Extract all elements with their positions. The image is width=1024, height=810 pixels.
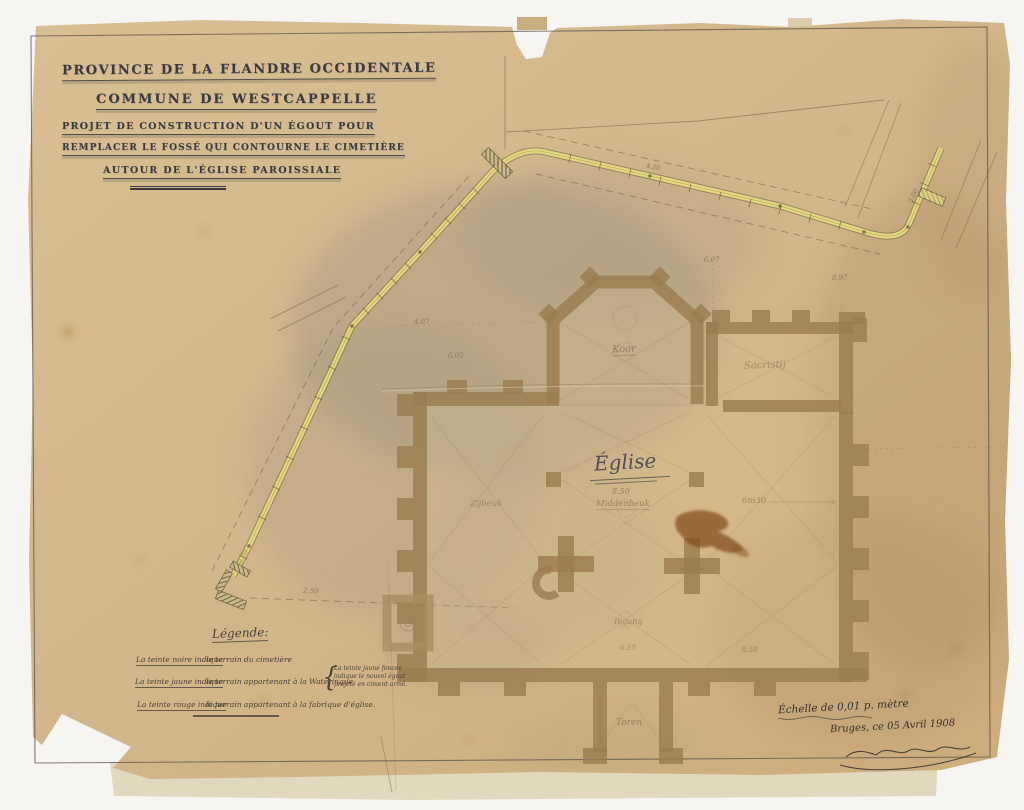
plan-label-aisle-left: Zijbeuk: [470, 499, 502, 509]
dimension-label: 6.07: [704, 256, 720, 264]
title-line-2: COMMUNE DE WESTCAPPELLE: [96, 92, 377, 110]
dimension-label: 8.50: [612, 487, 630, 496]
legend-note-line: La teinte jaune foncée: [334, 665, 402, 672]
legend-note-line: indique le nouvel égout: [334, 673, 405, 680]
plan-label-nave: Middenbeuk: [596, 499, 650, 510]
legend-heading: Légende:: [212, 625, 269, 643]
legend-item-text: le terrain appartenant à la fabrique d'é…: [206, 700, 375, 709]
dimension-label: 2.50: [303, 587, 319, 596]
plan-label-choir: Koor: [612, 344, 636, 357]
title-line-4: REMPLACER LE FOSSÉ QUI CONTOURNE LE CIME…: [62, 143, 405, 156]
dimension-label: 6.10: [620, 644, 636, 652]
dimension-label: 6.05: [448, 352, 464, 360]
tape-tab: [788, 18, 812, 28]
plan-label-tower: Toren: [616, 718, 642, 728]
legend-item-text: le terrain du cimetière: [206, 655, 292, 664]
tape-tab: [517, 17, 547, 30]
title-line-5: AUTOUR DE L'ÉGLISE PAROISSIALE: [103, 165, 341, 179]
plan-label-entrance: Ingang: [614, 617, 642, 626]
plan-label-church: Église: [593, 448, 656, 475]
dimension-label: 6m30: [742, 496, 766, 506]
title-end-rule: [130, 186, 226, 190]
scanned-plan-sheet: PROVINCE DE LA FLANDRE OCCIDENTALE COMMU…: [0, 0, 1024, 810]
dimension-label: 4.07: [414, 318, 430, 326]
dimension-label: 8.97: [832, 274, 848, 282]
title-line-1: PROVINCE DE LA FLANDRE OCCIDENTALE: [62, 61, 437, 82]
legend-end-rule: [193, 715, 279, 717]
legend-note-line: projeté en ciment armé.: [334, 681, 407, 688]
title-line-3: PROJET DE CONSTRUCTION D'UN ÉGOUT POUR: [62, 121, 375, 135]
dimension-label: 8.50: [742, 646, 758, 654]
plan-label-sacristy: Sacristij: [744, 359, 786, 371]
